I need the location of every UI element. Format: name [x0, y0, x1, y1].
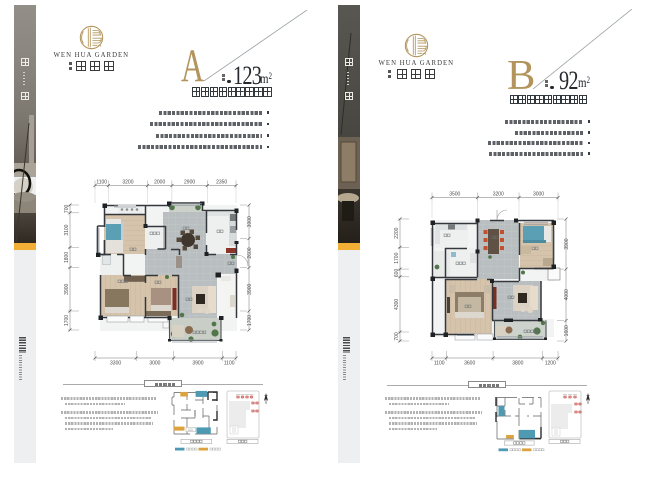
svg-text:3000: 3000 — [533, 192, 544, 198]
svg-text:1700: 1700 — [64, 315, 70, 326]
svg-text:3900: 3900 — [564, 238, 570, 249]
svg-text:700: 700 — [64, 205, 70, 214]
svg-text:2350: 2350 — [216, 180, 227, 186]
svg-text:3100: 3100 — [64, 224, 70, 235]
svg-text:3500: 3500 — [449, 192, 460, 198]
svg-text:3800: 3800 — [512, 361, 523, 367]
svg-text:3000: 3000 — [247, 216, 253, 227]
svg-text:1700: 1700 — [247, 315, 253, 326]
svg-text:2000: 2000 — [154, 180, 165, 186]
svg-text:3900: 3900 — [247, 283, 253, 294]
svg-text:3200: 3200 — [122, 180, 133, 186]
svg-text:700: 700 — [394, 332, 400, 341]
svg-text:600: 600 — [394, 269, 400, 278]
svg-text:1100: 1100 — [224, 361, 235, 367]
svg-text:2900: 2900 — [184, 180, 195, 186]
svg-text:3900: 3900 — [64, 283, 70, 294]
svg-text:3000: 3000 — [149, 361, 160, 367]
svg-text:1100: 1100 — [96, 180, 107, 186]
svg-text:3200: 3200 — [493, 192, 504, 198]
svg-text:3900: 3900 — [192, 361, 203, 367]
svg-text:3600: 3600 — [464, 361, 475, 367]
svg-text:4300: 4300 — [394, 299, 400, 310]
svg-text:3300: 3300 — [110, 361, 121, 367]
svg-text:1700: 1700 — [394, 252, 400, 263]
svg-text:1600: 1600 — [564, 325, 570, 336]
svg-text:1200: 1200 — [545, 361, 556, 367]
svg-text:2200: 2200 — [394, 227, 400, 238]
svg-text:1100: 1100 — [434, 361, 445, 367]
svg-text:4000: 4000 — [564, 289, 570, 300]
svg-text:1800: 1800 — [64, 252, 70, 263]
